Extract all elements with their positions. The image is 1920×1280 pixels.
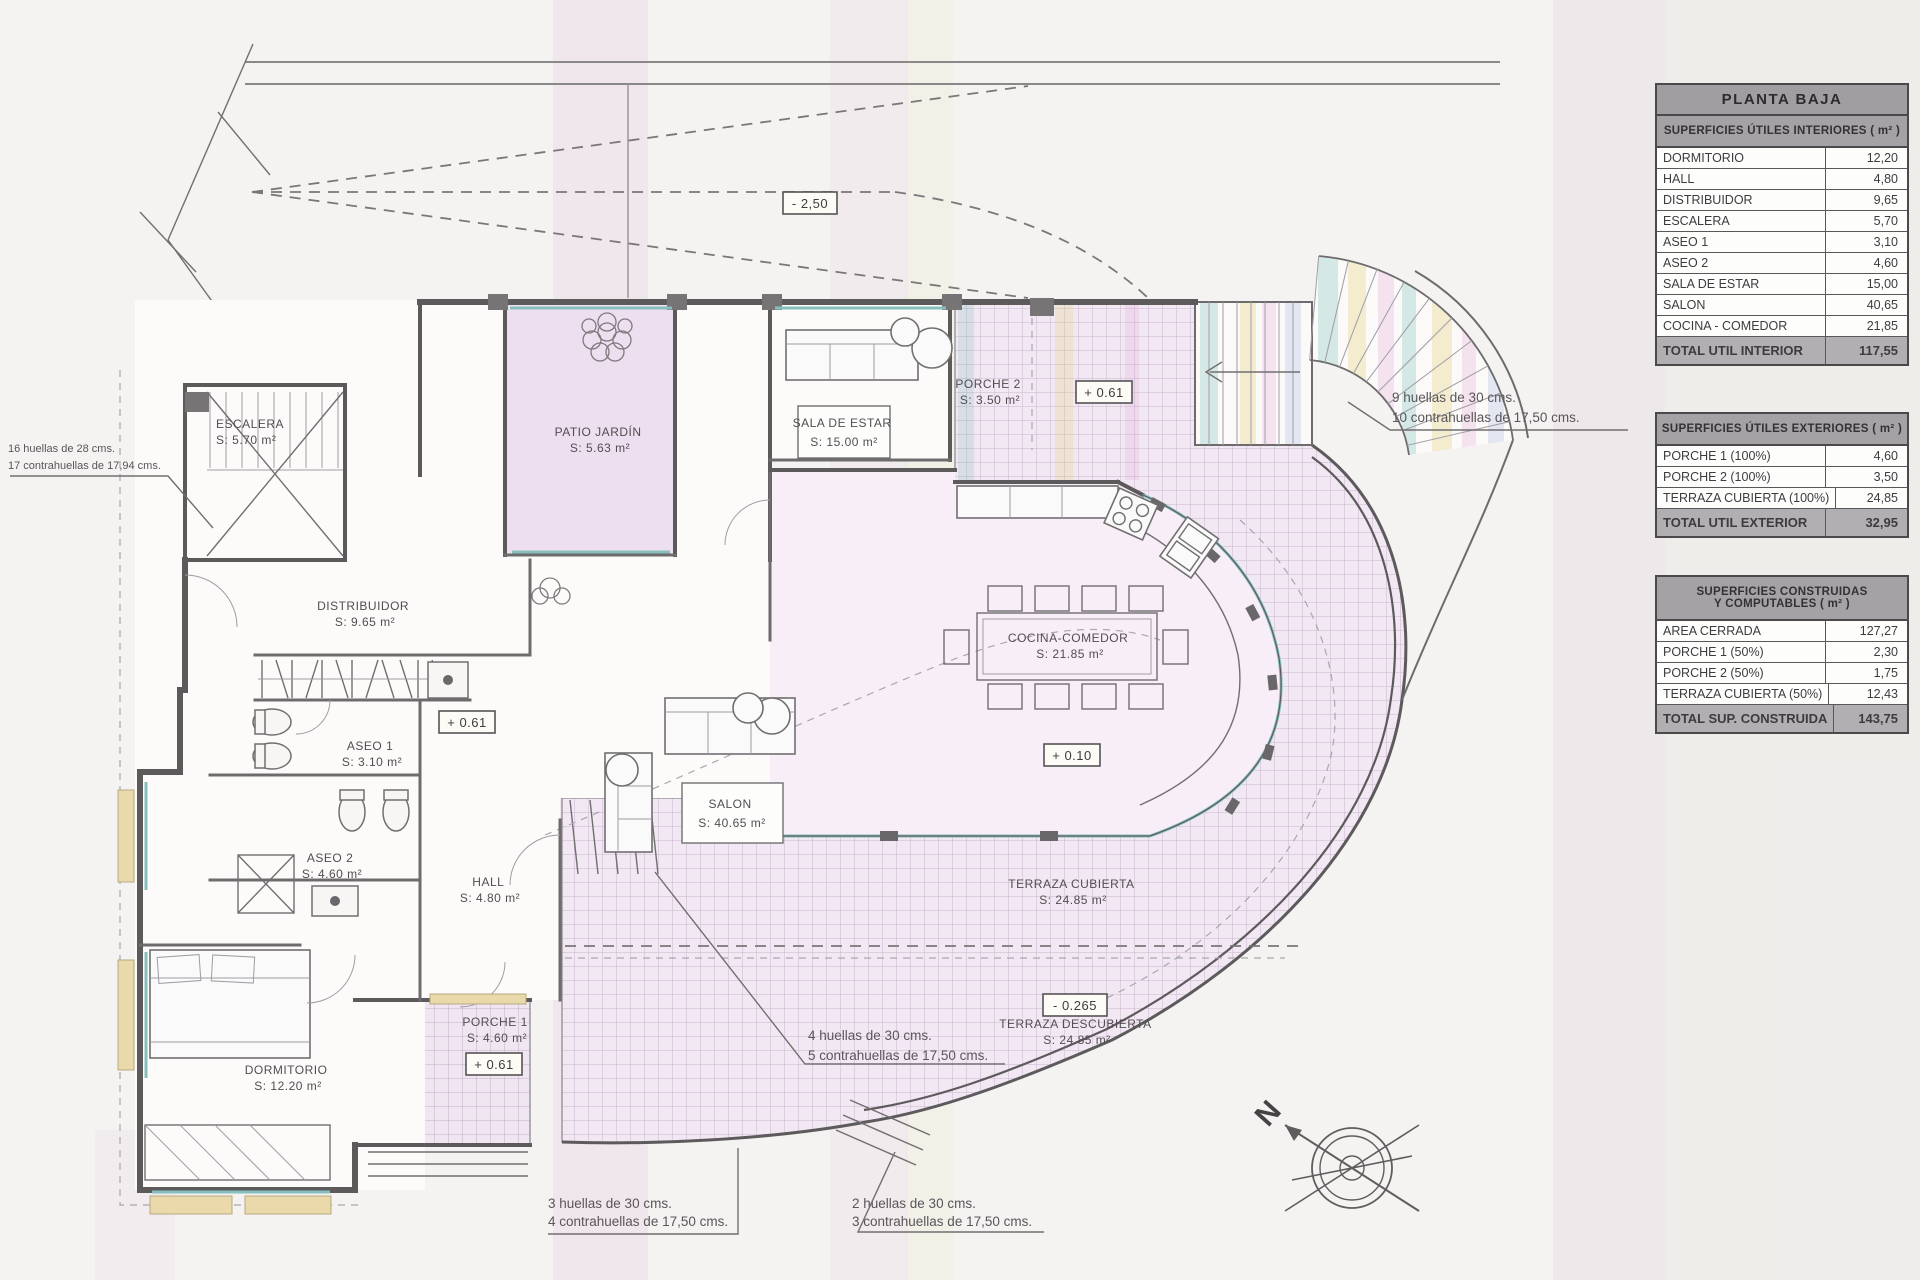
- level-marker-porche-1: + 0.61: [466, 1053, 522, 1075]
- table-row: COCINA - COMEDOR21,85: [1657, 316, 1907, 337]
- table-row: DISTRIBUIDOR9,65: [1657, 190, 1907, 211]
- svg-text:- 2,50: - 2,50: [792, 196, 828, 211]
- svg-text:+ 0.10: + 0.10: [1052, 748, 1092, 763]
- table-row: ESCALERA5,70: [1657, 211, 1907, 232]
- table-header-exteriores: SUPERFICIES ÚTILES EXTERIORES ( m² ): [1657, 414, 1907, 446]
- table-row: HALL4,80: [1657, 169, 1907, 190]
- table-row: PORCHE 2 (100%)3,50: [1657, 467, 1907, 488]
- table-superficies-interiores: PLANTA BAJA SUPERFICIES ÚTILES INTERIORE…: [1655, 83, 1909, 366]
- table-row: SALON40,65: [1657, 295, 1907, 316]
- table-header-construidas: SUPERFICIES CONSTRUIDAS Y COMPUTABLES ( …: [1657, 577, 1907, 621]
- table-row: AREA CERRADA127,27: [1657, 621, 1907, 642]
- table-row: ASEO 13,10: [1657, 232, 1907, 253]
- table-title-planta-baja: PLANTA BAJA: [1657, 85, 1907, 116]
- table-row: SALA DE ESTAR15,00: [1657, 274, 1907, 295]
- level-marker-cocina: + 0.10: [1044, 744, 1100, 766]
- table-row: DORMITORIO12,20: [1657, 148, 1907, 169]
- level-marker-terraza: - 0.265: [1043, 994, 1107, 1016]
- level-marker-ramp: - 2,50: [783, 192, 837, 214]
- table-total-row: TOTAL UTIL EXTERIOR32,95: [1657, 509, 1907, 536]
- table-total-row: TOTAL SUP. CONSTRUIDA143,75: [1657, 705, 1907, 732]
- compass-north-label: N: [1249, 1094, 1288, 1132]
- sofa-salon-horizontal: [665, 693, 795, 754]
- label-sala-de-estar: SALA DE ESTAR S: 15.00 m²: [793, 406, 896, 458]
- table-row: PORCHE 1 (100%)4,60: [1657, 446, 1907, 467]
- table-row: TERRAZA CUBIERTA (100%)24,85: [1657, 488, 1907, 509]
- sofa-salon-vertical: [605, 753, 652, 852]
- compass-rose: N: [1249, 1094, 1419, 1211]
- svg-text:+ 0.61: + 0.61: [474, 1057, 514, 1072]
- label-salon: SALON S: 40.65 m²: [682, 783, 783, 843]
- table-row: PORCHE 2 (50%)1,75: [1657, 663, 1907, 684]
- table-total-row: TOTAL UTIL INTERIOR117,55: [1657, 337, 1907, 364]
- table-superficies-construidas: SUPERFICIES CONSTRUIDAS Y COMPUTABLES ( …: [1655, 575, 1909, 734]
- table-row: PORCHE 1 (50%)2,30: [1657, 642, 1907, 663]
- table-row: ASEO 24,60: [1657, 253, 1907, 274]
- floorplan-drawing: N ESCALERA S: 5.70 m² PATIO JARDÍN S: 5.…: [0, 0, 1920, 1280]
- svg-text:+ 0.61: + 0.61: [1084, 385, 1124, 400]
- table-header-interiores: SUPERFICIES ÚTILES INTERIORES ( m² ): [1657, 116, 1907, 148]
- level-marker-porche-2: + 0.61: [1076, 381, 1132, 403]
- svg-text:- 0.265: - 0.265: [1053, 998, 1097, 1013]
- table-superficies-exteriores: SUPERFICIES ÚTILES EXTERIORES ( m² ) POR…: [1655, 412, 1909, 538]
- bed: [150, 950, 310, 1058]
- level-marker-salon: + 0.61: [439, 711, 495, 733]
- svg-text:+ 0.61: + 0.61: [447, 715, 487, 730]
- floorplan-page: N ESCALERA S: 5.70 m² PATIO JARDÍN S: 5.…: [0, 0, 1920, 1280]
- table-row: TERRAZA CUBIERTA (50%)12,43: [1657, 684, 1907, 705]
